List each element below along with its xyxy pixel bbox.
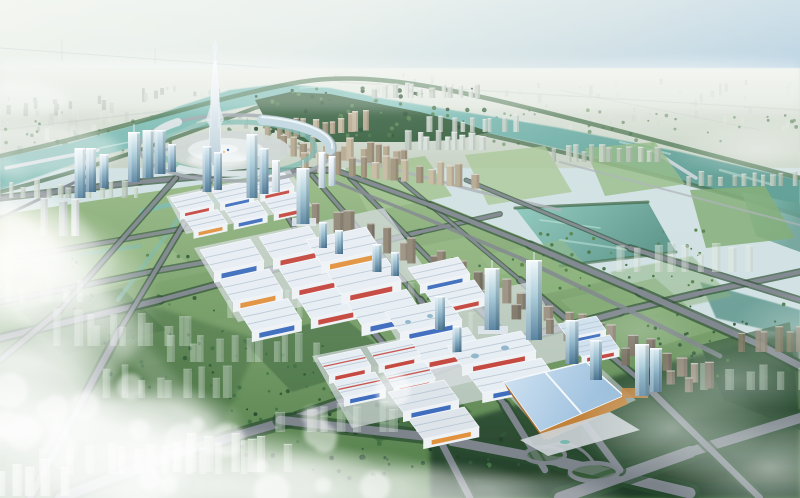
- scene-svg: [0, 0, 800, 498]
- masterplan-rendering: [0, 0, 800, 498]
- atmosphere-layer: [0, 0, 800, 498]
- atmo-overlay: [0, 0, 800, 498]
